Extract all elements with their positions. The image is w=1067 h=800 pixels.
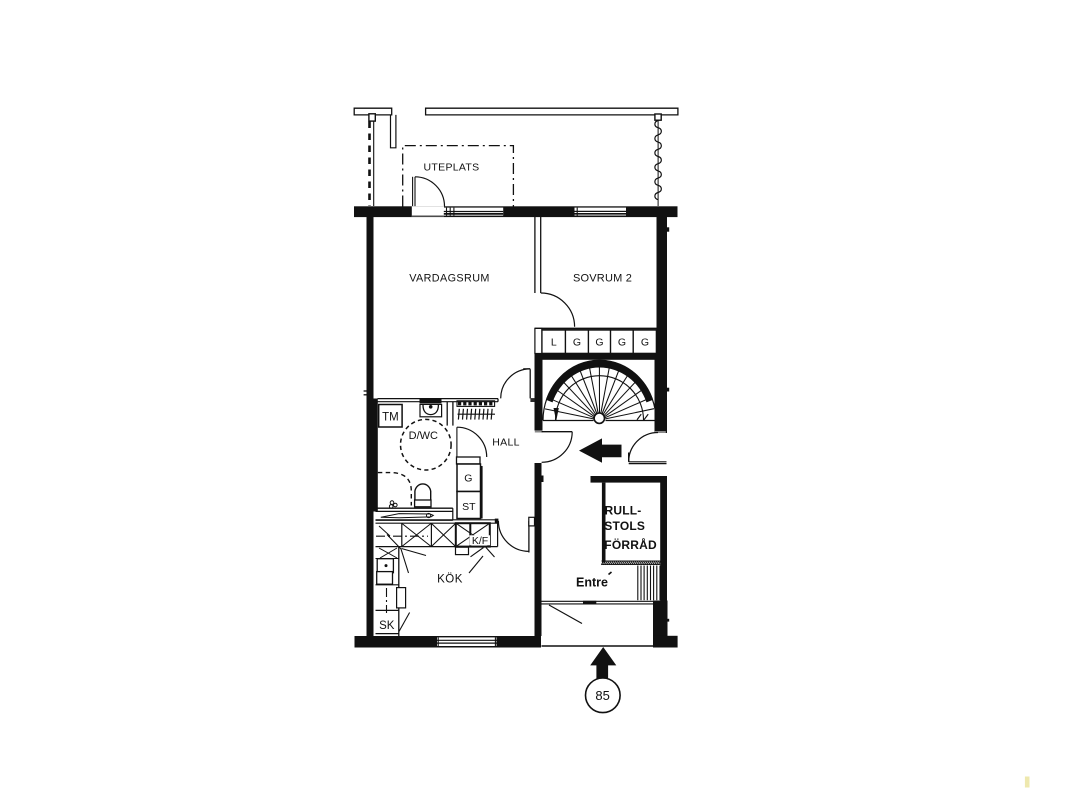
svg-text:RULL-: RULL- <box>605 503 642 517</box>
svg-text:D/WC: D/WC <box>409 430 438 442</box>
svg-text:G: G <box>573 337 581 349</box>
svg-text:K/F: K/F <box>472 535 488 547</box>
svg-text:TM: TM <box>382 411 399 423</box>
svg-text:STOLS: STOLS <box>604 519 645 533</box>
svg-text:G: G <box>641 337 649 349</box>
svg-text:L: L <box>551 337 557 349</box>
svg-text:ST: ST <box>462 501 476 513</box>
svg-text:KÖK: KÖK <box>437 574 463 586</box>
svg-text:UTEPLATS: UTEPLATS <box>424 162 480 174</box>
svg-text:G: G <box>595 337 603 349</box>
svg-text:HALL: HALL <box>492 437 519 449</box>
svg-text:85: 85 <box>595 688 609 703</box>
svg-text:Entre: Entre <box>576 576 608 590</box>
svg-text:VARDAGSRUM: VARDAGSRUM <box>409 273 490 285</box>
svg-text:G: G <box>618 337 626 349</box>
svg-text:G: G <box>464 473 472 485</box>
svg-text:FÖRRÅD: FÖRRÅD <box>604 537 657 552</box>
svg-text:SK: SK <box>379 620 395 632</box>
svg-text:SOVRUM 2: SOVRUM 2 <box>573 273 632 285</box>
